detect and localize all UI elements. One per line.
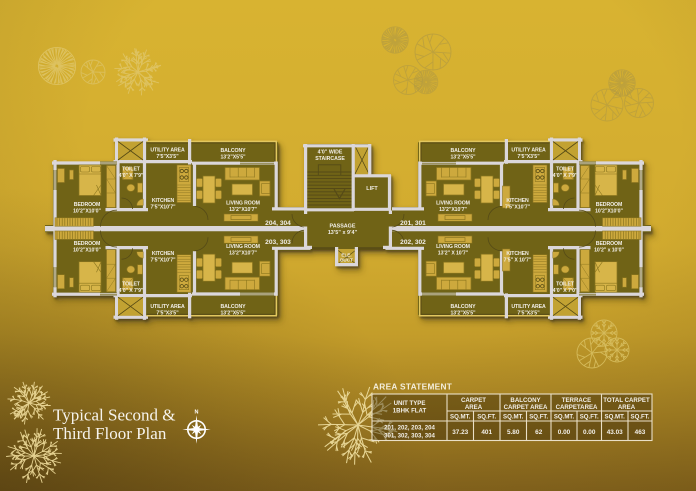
svg-text:SQ.FT.: SQ.FT. [631, 413, 650, 420]
svg-text:SQ.FT.: SQ.FT. [580, 413, 599, 420]
svg-text:UTILITY AREA: UTILITY AREA [511, 304, 546, 310]
svg-text:KITCHEN: KITCHEN [506, 251, 529, 257]
svg-text:Typical Second &: Typical Second & [53, 406, 176, 425]
svg-text:AREA: AREA [465, 404, 483, 411]
svg-text:SQ.MT.: SQ.MT. [503, 413, 524, 420]
svg-text:TOILET: TOILET [122, 167, 141, 173]
svg-text:0.00: 0.00 [558, 429, 571, 436]
svg-text:62: 62 [535, 429, 543, 436]
svg-text:4’0” X 7’9”: 4’0” X 7’9” [119, 288, 144, 294]
svg-text:SQ.MT.: SQ.MT. [605, 413, 626, 420]
svg-text:13’5” x 9’4”: 13’5” x 9’4” [328, 230, 358, 236]
svg-text:BEDROOM: BEDROOM [596, 202, 622, 208]
svg-text:7’5”X3’5”: 7’5”X3’5” [156, 154, 179, 160]
svg-text:BEDROOM: BEDROOM [74, 241, 100, 247]
svg-text:SQ.FT.: SQ.FT. [529, 413, 548, 420]
svg-text:BALCONY: BALCONY [221, 304, 247, 310]
svg-text:10’2”X10’0”: 10’2”X10’0” [73, 208, 101, 214]
svg-text:7’5”X10’7”: 7’5”X10’7” [505, 204, 530, 210]
svg-text:TOILET: TOILET [556, 167, 575, 173]
svg-text:202, 302: 202, 302 [400, 239, 426, 246]
svg-text:KITCHEN: KITCHEN [152, 251, 175, 257]
svg-text:5.80: 5.80 [507, 429, 520, 436]
svg-text:4’0” X 7’9”: 4’0” X 7’9” [553, 173, 578, 179]
svg-text:LIVING ROOM: LIVING ROOM [226, 244, 260, 250]
svg-text:SQ.MT.: SQ.MT. [450, 413, 471, 420]
svg-text:STAIRCASE: STAIRCASE [315, 156, 345, 162]
svg-text:BALCONY: BALCONY [451, 148, 477, 154]
svg-text:1BHK FLAT: 1BHK FLAT [393, 408, 427, 415]
svg-text:DUCT: DUCT [340, 258, 353, 263]
svg-text:BEDROOM: BEDROOM [596, 241, 622, 247]
svg-text:401: 401 [481, 429, 492, 436]
svg-text:7’5”X3’5”: 7’5”X3’5” [517, 310, 540, 316]
svg-text:10’2” x 10’0”: 10’2” x 10’0” [594, 247, 624, 253]
svg-text:201, 202, 203, 204: 201, 202, 203, 204 [384, 425, 435, 432]
svg-text:13’2”X5’5”: 13’2”X5’5” [451, 310, 476, 316]
svg-text:UNIT TYPE: UNIT TYPE [394, 400, 426, 407]
svg-text:AREA: AREA [618, 404, 636, 411]
svg-text:43.03: 43.03 [607, 429, 623, 436]
svg-text:13’2”X5’5”: 13’2”X5’5” [451, 154, 476, 160]
svg-text:N: N [195, 410, 199, 416]
svg-text:BEDROOM: BEDROOM [74, 202, 100, 208]
svg-text:TOILET: TOILET [556, 282, 575, 288]
svg-text:0.00: 0.00 [583, 429, 596, 436]
svg-text:37.23: 37.23 [452, 429, 468, 436]
svg-text:7’5”X3’5”: 7’5”X3’5” [517, 154, 540, 160]
svg-text:TOILET: TOILET [122, 282, 141, 288]
svg-text:204, 304: 204, 304 [265, 220, 291, 227]
svg-text:301, 302, 303, 304: 301, 302, 303, 304 [384, 433, 435, 440]
svg-text:7’5” X 10’7”: 7’5” X 10’7” [504, 257, 532, 263]
svg-text:13’2”X10’7”: 13’2”X10’7” [439, 207, 467, 213]
svg-text:10’2”X10’0”: 10’2”X10’0” [73, 247, 101, 253]
svg-text:UTILITY AREA: UTILITY AREA [511, 148, 546, 154]
svg-text:PASSAGE: PASSAGE [330, 224, 356, 230]
svg-text:CARPETAREA: CARPETAREA [556, 404, 598, 411]
svg-text:KITCHEN: KITCHEN [506, 198, 529, 204]
svg-text:LIVING ROOM: LIVING ROOM [226, 201, 260, 207]
svg-text:LIVING ROOM: LIVING ROOM [436, 244, 470, 250]
svg-text:13’2”X5’5”: 13’2”X5’5” [221, 154, 246, 160]
svg-text:BALCONY: BALCONY [221, 148, 247, 154]
svg-text:BALCONY: BALCONY [451, 304, 477, 310]
svg-text:10’2”X10’0”: 10’2”X10’0” [595, 208, 623, 214]
svg-text:KITCHEN: KITCHEN [152, 198, 175, 204]
svg-text:7’5”X10’7”: 7’5”X10’7” [151, 204, 176, 210]
svg-text:4’0” WIDE: 4’0” WIDE [318, 150, 343, 156]
svg-text:4’0” X 7’0”: 4’0” X 7’0” [553, 288, 578, 294]
svg-text:CARPET AREA: CARPET AREA [504, 404, 548, 411]
svg-text:UTILITY AREA: UTILITY AREA [150, 148, 185, 154]
svg-text:201, 301: 201, 301 [400, 220, 426, 227]
svg-text:13’2”X10’7”: 13’2”X10’7” [229, 250, 257, 256]
svg-text:AREA STATEMENT: AREA STATEMENT [373, 382, 452, 392]
svg-text:SQ.MT.: SQ.MT. [554, 413, 575, 420]
svg-text:4’0” X 7’9”: 4’0” X 7’9” [119, 173, 144, 179]
svg-text:7’5”X10’7”: 7’5”X10’7” [151, 257, 176, 263]
svg-text:Third Floor Plan: Third Floor Plan [53, 424, 167, 443]
svg-text:463: 463 [635, 429, 646, 436]
svg-text:CARPET: CARPET [461, 397, 486, 404]
svg-text:7’5”X3’5”: 7’5”X3’5” [156, 310, 179, 316]
svg-text:13’2” X 10’7”: 13’2” X 10’7” [438, 250, 469, 256]
svg-text:BALCONY: BALCONY [510, 397, 540, 404]
svg-text:SQ.FT.: SQ.FT. [477, 413, 496, 420]
svg-text:13’2”X10’7”: 13’2”X10’7” [229, 207, 257, 213]
svg-text:TERRACE: TERRACE [562, 397, 591, 404]
svg-text:LIVING ROOM: LIVING ROOM [436, 201, 470, 207]
svg-text:13’2”X5’5”: 13’2”X5’5” [221, 310, 246, 316]
svg-text:TOTAL CARPET: TOTAL CARPET [603, 397, 650, 404]
svg-text:UTILITY AREA: UTILITY AREA [150, 304, 185, 310]
svg-text:LIFT: LIFT [366, 186, 378, 192]
svg-text:203, 303: 203, 303 [265, 239, 291, 246]
